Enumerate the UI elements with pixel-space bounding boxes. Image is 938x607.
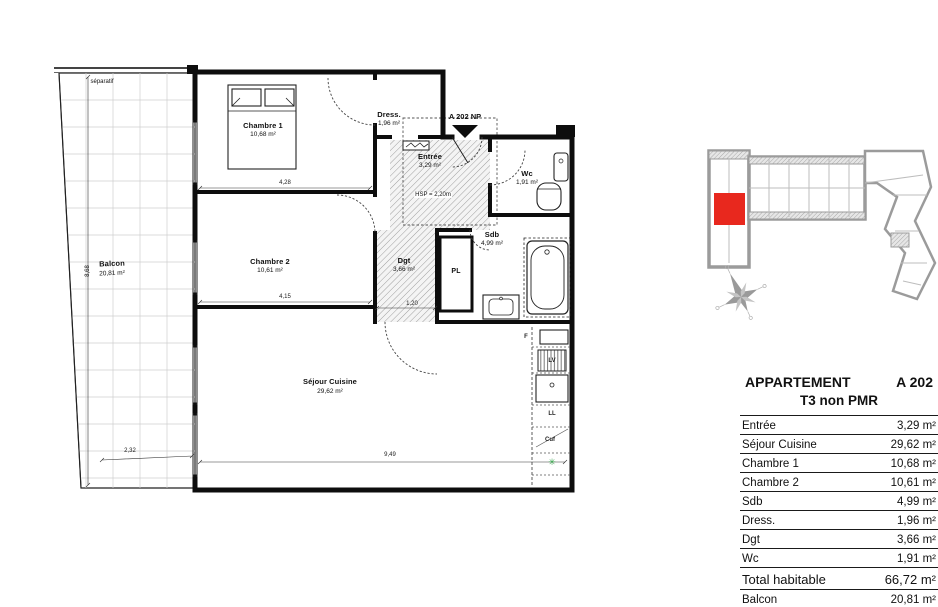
row-label: Séjour Cuisine [742,439,817,451]
row-label: Sdb [742,496,762,508]
separatif-label: séparatif [90,79,113,85]
row-label: Dress. [742,515,775,527]
table-unit-number: A 202 [896,374,933,390]
radiator-symbol [403,141,429,150]
row-value: 4,99 m² [897,496,936,508]
room-sdb-area: 4,99 m² [481,240,503,247]
entrance-arrow-icon [452,125,478,138]
room-balcon-name: Balcon [99,259,125,269]
balcony-area [54,65,198,488]
bathroom-fixtures [483,238,570,319]
row-value: 3,66 m² [897,534,936,546]
room-pl-name: PL [451,268,460,275]
row-value: 1,96 m² [897,515,936,527]
room-dress-area: 1,96 m² [378,120,400,127]
dishwasher-label: LV [548,358,555,364]
table-row: Chambre 2 10,61 m² [740,472,938,491]
room-sdb-name: Sdb [485,230,499,239]
floorplan-drawing [40,55,585,505]
row-label: Total habitable [742,572,826,587]
row-label: Balcon [742,594,777,606]
room-chambre2-name: Chambre 2 [250,257,290,266]
table-row: Entrée 3,29 m² [740,415,938,434]
room-dress-name: Dress. [377,110,401,119]
cooker-label: Cuf [545,437,555,443]
dim-chambre2-width: 4,15 [279,294,291,300]
fridge-label: F [524,334,528,340]
table-rows: Entrée 3,29 m² Séjour Cuisine 29,62 m² C… [740,415,938,607]
room-chambre2-area: 10,61 m² [257,267,283,274]
room-dgt-area: 3,66 m² [393,266,415,273]
eco-symbol-icon: ✳ [548,457,556,468]
floorplan-page: séparatif A 202 NP Chambre 1 10,68 m² Dr… [0,0,938,607]
table-row-total: Total habitable 66,72 m² [740,567,938,589]
row-value: 1,91 m² [897,553,936,565]
row-label: Wc [742,553,759,565]
table-subtitle: T3 non PMR [740,393,938,408]
wc-fixtures [537,153,568,210]
room-dgt-name: Dgt [398,256,411,265]
area-table: APPARTEMENT A 202 T3 non PMR Entrée 3,29… [740,374,938,607]
room-chambre1-area: 10,68 m² [250,131,276,138]
dim-chambre1-width: 4,28 [279,180,291,186]
key-plan [695,135,938,325]
table-row: Séjour Cuisine 29,62 m² [740,434,938,453]
row-label: Dgt [742,534,760,546]
room-sejour-name: Séjour Cuisine [303,377,357,386]
row-value: 20,81 m² [891,594,936,606]
room-entree-name: Entrée [418,152,442,161]
row-value: 10,68 m² [891,458,936,470]
table-row: Dgt 3,66 m² [740,529,938,548]
dim-balcon-height: 8,68 [85,265,91,277]
room-entree-area: 3,29 m² [419,162,441,169]
highlighted-unit-marker [714,193,745,225]
wall-stub [556,125,575,137]
table-title-row: APPARTEMENT A 202 [740,374,938,390]
washing-machine-label: LL [548,411,555,417]
table-title: APPARTEMENT [745,374,851,390]
hsp-note: HSP = 2,20m [414,192,452,198]
row-label: Chambre 2 [742,477,799,489]
row-value: 66,72 m² [885,572,936,587]
row-label: Entrée [742,420,776,432]
row-value: 10,61 m² [891,477,936,489]
table-row: Chambre 1 10,68 m² [740,453,938,472]
table-row: Sdb 4,99 m² [740,491,938,510]
room-balcon-area: 20,81 m² [99,270,125,278]
table-row: Wc 1,91 m² [740,548,938,567]
row-label: Chambre 1 [742,458,799,470]
unit-entrance-label: A 202 NP [449,112,481,121]
table-row: Balcon 20,81 m² [740,589,938,607]
row-value: 3,29 m² [897,420,936,432]
table-row: Dress. 1,96 m² [740,510,938,529]
room-wc-name: Wc [521,169,532,178]
dim-dgt-width: 1,20 [406,301,418,307]
row-value: 29,62 m² [891,439,936,451]
room-chambre1-name: Chambre 1 [243,121,283,130]
dim-sejour-width: 9,49 [384,452,396,458]
dim-balcon-width: 2,32 [124,448,136,454]
room-wc-area: 1,91 m² [516,179,538,186]
room-sejour-area: 29,62 m² [317,388,343,395]
